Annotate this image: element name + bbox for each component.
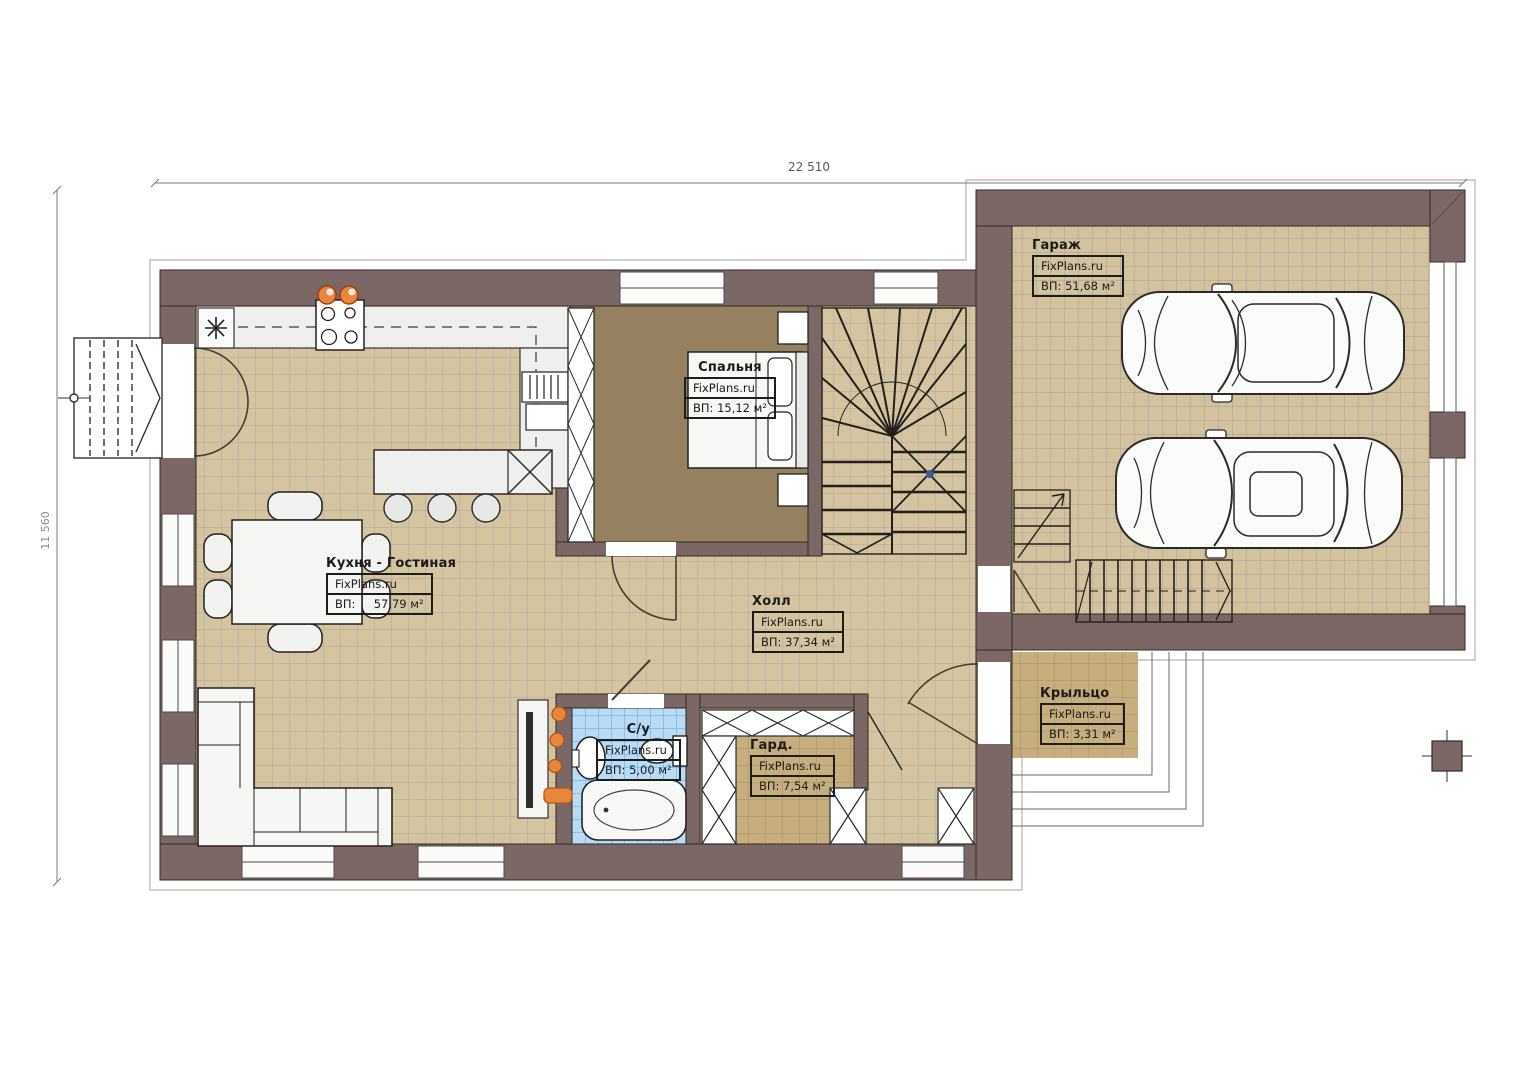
room-label-porch: Крыльцо FixPlans.ru ВП: 3,31 м²	[1040, 686, 1125, 745]
brand-watermark: FixPlans.ru	[686, 379, 774, 397]
stool	[428, 494, 456, 522]
stool	[384, 494, 412, 522]
room-area-bathroom: ВП: 5,00 м²	[598, 759, 679, 779]
brand-watermark: FixPlans.ru	[754, 613, 842, 631]
nightstand	[778, 312, 808, 344]
room-area-garage: ВП: 51,68 м²	[1034, 275, 1122, 295]
room-name-bathroom: С/у	[596, 722, 681, 737]
room-label-bedroom: Спальня FixPlans.ru ВП: 15,12 м²	[684, 360, 776, 419]
bedroom-closet	[568, 308, 594, 542]
room-name-wardrobe: Гард.	[750, 738, 835, 753]
floor-plan-canvas: 22 510 11 560 Гараж FixPlans.ru ВП: 51,6…	[0, 0, 1528, 1080]
room-label-bathroom: С/у FixPlans.ru ВП: 5,00 м²	[596, 722, 681, 781]
room-label-kitchen: Кухня - Гостиная FixPlans.ru ВП: 57,79 м…	[326, 556, 456, 615]
car-bottom	[1116, 430, 1402, 558]
room-label-garage: Гараж FixPlans.ru ВП: 51,68 м²	[1032, 238, 1124, 297]
nightstand	[778, 474, 808, 506]
room-area-bedroom: ВП: 15,12 м²	[686, 397, 774, 417]
brand-watermark: FixPlans.ru	[1034, 257, 1122, 275]
dimension-width-label: 22 510	[155, 160, 1463, 174]
room-name-bedroom: Спальня	[684, 360, 776, 375]
kitchen-island	[374, 450, 552, 494]
dimension-height-label: 11 560	[39, 511, 52, 550]
brand-watermark: FixPlans.ru	[328, 575, 431, 593]
room-name-kitchen: Кухня - Гостиная	[326, 556, 456, 571]
stool	[472, 494, 500, 522]
room-area-hall: ВП: 37,34 м²	[754, 631, 842, 651]
room-name-garage: Гараж	[1032, 238, 1124, 253]
brand-watermark: FixPlans.ru	[1042, 705, 1123, 723]
brand-watermark: FixPlans.ru	[752, 757, 833, 775]
room-area-porch: ВП: 3,31 м²	[1042, 723, 1123, 743]
pillow	[768, 412, 792, 460]
room-name-hall: Холл	[752, 594, 844, 609]
room-name-porch: Крыльцо	[1040, 686, 1125, 701]
porch-column	[1422, 730, 1472, 782]
room-area-wardrobe: ВП: 7,54 м²	[752, 775, 833, 795]
entry-steps	[58, 338, 162, 458]
appliance	[522, 372, 568, 402]
car-top	[1122, 284, 1404, 402]
room-area-kitchen: ВП: 57,79 м²	[328, 593, 431, 613]
room-label-hall: Холл FixPlans.ru ВП: 37,34 м²	[752, 594, 844, 653]
brand-watermark: FixPlans.ru	[598, 741, 679, 759]
bathtub	[582, 780, 686, 840]
room-label-wardrobe: Гард. FixPlans.ru ВП: 7,54 м²	[750, 738, 835, 797]
